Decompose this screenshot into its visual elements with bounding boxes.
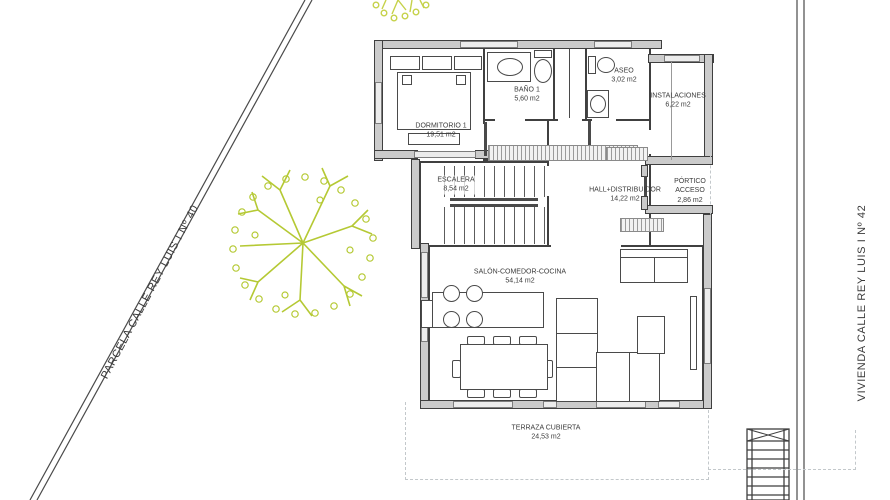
side-table bbox=[637, 316, 665, 354]
closet-divider bbox=[569, 48, 570, 118]
room-label-bano-1: BAÑO 1 5,60 m2 bbox=[502, 86, 552, 105]
room-label-dormitorio-1: DORMITORIO 1 19,51 m2 bbox=[401, 122, 481, 141]
room-label-aseo: ASEO 3,02 m2 bbox=[602, 67, 646, 86]
room-area: 2,86 m2 bbox=[677, 197, 702, 204]
window-salon-left-1 bbox=[421, 252, 428, 298]
room-name: PÓRTICO ACCESO bbox=[674, 178, 706, 194]
room-label-instalaciones: INSTALACIONES 6,22 m2 bbox=[649, 92, 707, 111]
room-name: ASEO bbox=[614, 68, 633, 75]
stool-icon bbox=[443, 311, 460, 328]
toilet-tank bbox=[534, 50, 552, 58]
bathroom-sink bbox=[587, 90, 609, 118]
terraza-dashed-bottom bbox=[405, 479, 709, 480]
room-area: 5,60 m2 bbox=[514, 96, 539, 103]
window-instalaciones-top bbox=[664, 55, 700, 62]
window-aseo-top bbox=[594, 41, 632, 48]
terraza-dashed-left bbox=[405, 402, 406, 480]
room-name: INSTALACIONES bbox=[650, 93, 706, 100]
pillow bbox=[456, 75, 466, 85]
room-label-terraza: TERRAZA CUBIERTA 24,53 m2 bbox=[486, 424, 606, 443]
room-closet bbox=[553, 45, 587, 121]
stair-rail-bottom bbox=[450, 204, 538, 207]
room-area: 19,51 m2 bbox=[426, 132, 455, 139]
room-area: 54,14 m2 bbox=[505, 278, 534, 285]
window-salon-right bbox=[704, 288, 711, 364]
sofa-l-shaped-horizontal bbox=[596, 352, 660, 402]
window-dormitorio-bottom bbox=[414, 151, 476, 158]
room-label-escalera: ESCALERA 8,54 m2 bbox=[431, 176, 481, 195]
floor-hatch-entrance bbox=[606, 147, 648, 161]
chair bbox=[493, 389, 511, 398]
sofa-cushion-line bbox=[629, 353, 630, 401]
sink-basin-icon bbox=[590, 95, 606, 113]
stool-icon bbox=[466, 285, 483, 302]
parcel-dashed-right bbox=[855, 430, 856, 470]
dining-table bbox=[460, 344, 548, 390]
tv-unit bbox=[690, 296, 697, 370]
exterior-stair-icon bbox=[747, 429, 789, 500]
window-dormitorio-left bbox=[375, 82, 382, 124]
vivienda-boundary-label: VIVIENDA CALLE REY LUIS I Nº 42 bbox=[856, 205, 868, 402]
door-leaf-aseo bbox=[588, 121, 591, 145]
instalaciones-divider bbox=[671, 62, 672, 160]
street-boundary-line bbox=[797, 0, 804, 500]
sofa-cushion-line bbox=[557, 367, 597, 368]
stair-rail-top bbox=[450, 198, 538, 201]
window-salon-bottom-2 bbox=[543, 401, 557, 408]
wall-portico-top bbox=[645, 156, 713, 165]
room-area: 3,02 m2 bbox=[611, 77, 636, 84]
wall-dormitorio-bottom-left bbox=[374, 150, 418, 159]
bathroom-sink bbox=[487, 52, 531, 82]
sofa-l-shaped-vertical bbox=[556, 298, 598, 402]
door-opening-bano bbox=[495, 117, 525, 123]
door-opening-hall-salon bbox=[551, 241, 621, 251]
room-name: ESCALERA bbox=[437, 177, 474, 184]
room-name: TERRAZA CUBIERTA bbox=[512, 425, 581, 432]
stool-icon bbox=[443, 285, 460, 302]
room-area: 6,22 m2 bbox=[665, 102, 690, 109]
sink-basin-icon bbox=[497, 58, 523, 76]
window-salon-bottom-1 bbox=[453, 401, 513, 408]
chair bbox=[519, 389, 537, 398]
room-area: 14,22 m2 bbox=[610, 196, 639, 203]
kitchen-counter-stub bbox=[421, 300, 433, 328]
pillow bbox=[402, 75, 412, 85]
floor-plan-drawing: DORMITORIO 1 19,51 m2 BAÑO 1 5,60 m2 ASE… bbox=[0, 0, 890, 500]
room-name: SALÓN-COMEDOR-COCINA bbox=[474, 269, 566, 276]
room-name: HALL+DISTRIBUIDOR bbox=[589, 187, 661, 194]
room-name: BAÑO 1 bbox=[514, 87, 540, 94]
room-label-salon: SALÓN-COMEDOR-COCINA 54,14 m2 bbox=[455, 268, 585, 287]
window-salon-bottom-4 bbox=[658, 401, 680, 408]
wall-portico-bottom bbox=[645, 205, 713, 214]
wall-escalera-left bbox=[411, 159, 420, 249]
tree-icon bbox=[230, 168, 376, 317]
window-salon-bottom-3 bbox=[596, 401, 646, 408]
tree-partial-icon bbox=[373, 0, 429, 21]
toilet-bowl-icon bbox=[534, 59, 552, 83]
sofa-two-seat bbox=[620, 249, 688, 283]
headboard-cabinet bbox=[422, 56, 452, 70]
room-label-hall: HALL+DISTRIBUIDOR 14,22 m2 bbox=[585, 186, 665, 205]
parcel-dashed-bottom-right bbox=[708, 469, 856, 470]
window-dormitorio-top bbox=[460, 41, 518, 48]
stool-icon bbox=[466, 311, 483, 328]
room-label-portico: PÓRTICO ACCESO 2,86 m2 bbox=[671, 177, 709, 205]
chair bbox=[467, 389, 485, 398]
door-opening-closet bbox=[558, 117, 582, 123]
headboard-cabinet bbox=[454, 56, 482, 70]
floor-hatch-hall bbox=[620, 218, 664, 232]
sofa-cushion-line bbox=[557, 333, 597, 334]
toilet-tank bbox=[588, 56, 596, 74]
room-area: 8,54 m2 bbox=[443, 186, 468, 193]
portico-dashed-edge bbox=[710, 150, 711, 230]
room-area: 24,53 m2 bbox=[531, 434, 560, 441]
headboard-cabinet bbox=[390, 56, 420, 70]
room-name: DORMITORIO 1 bbox=[415, 123, 466, 130]
sofa-cushion-line bbox=[654, 257, 655, 283]
door-leaf-dormitorio bbox=[484, 122, 487, 156]
